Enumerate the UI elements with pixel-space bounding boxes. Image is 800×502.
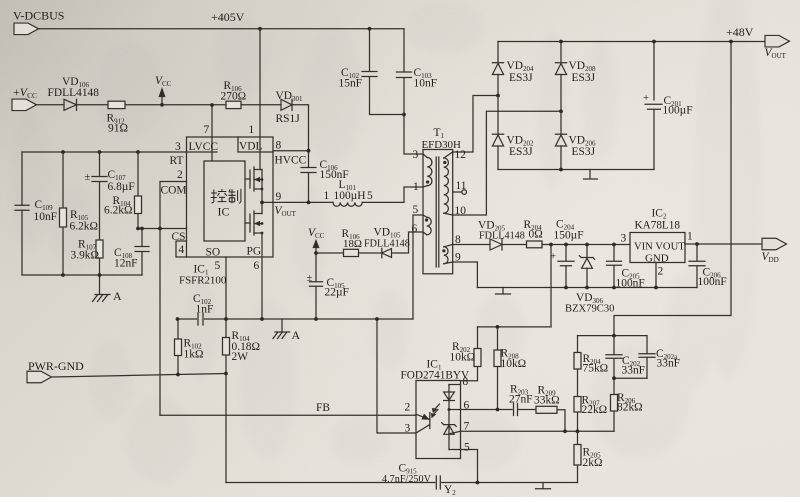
svg-text:6: 6 <box>464 400 470 412</box>
svg-text:VIN VOUT: VIN VOUT <box>634 242 685 253</box>
svg-text:10nF: 10nF <box>34 211 58 223</box>
svg-text:10nF: 10nF <box>414 78 438 90</box>
svg-text:15nF: 15nF <box>339 78 363 90</box>
svg-text:FDLL4148: FDLL4148 <box>48 87 100 99</box>
svg-text:2: 2 <box>405 402 411 414</box>
svg-text:6.2kΩ: 6.2kΩ <box>104 205 133 217</box>
svg-text:LVCC: LVCC <box>189 141 218 153</box>
svg-text:ES3J: ES3J <box>509 72 533 84</box>
svg-text:10kΩ: 10kΩ <box>501 358 527 370</box>
svg-text:ES3J: ES3J <box>509 146 533 158</box>
svg-text:82kΩ: 82kΩ <box>617 402 643 414</box>
svg-text:3: 3 <box>413 149 419 161</box>
svg-text:6: 6 <box>412 223 418 235</box>
svg-text:FOD2741BYV: FOD2741BYV <box>401 370 470 382</box>
svg-text:33nF: 33nF <box>657 358 681 370</box>
svg-text:10kΩ: 10kΩ <box>450 352 476 364</box>
svg-text:91Ω: 91Ω <box>108 123 128 135</box>
svg-text:100nF: 100nF <box>616 278 645 290</box>
svg-text:+405V: +405V <box>211 10 245 24</box>
svg-text:75kΩ: 75kΩ <box>583 363 609 375</box>
svg-text:1: 1 <box>687 231 693 243</box>
svg-text:0Ω: 0Ω <box>529 229 543 241</box>
svg-text:IC: IC <box>218 205 230 219</box>
svg-text:27nF: 27nF <box>509 394 533 406</box>
svg-text:22kΩ: 22kΩ <box>582 404 608 416</box>
svg-text:5: 5 <box>413 204 419 216</box>
svg-text:33nF: 33nF <box>622 365 646 377</box>
svg-text:±: ± <box>307 273 313 284</box>
svg-text:100µH: 100µH <box>334 190 366 202</box>
svg-text:3: 3 <box>621 233 627 245</box>
svg-text:ES3J: ES3J <box>572 146 596 158</box>
svg-text:KA78L18: KA78L18 <box>635 220 681 232</box>
svg-text:FDLL4148: FDLL4148 <box>364 239 410 250</box>
svg-text:SO: SO <box>206 247 221 259</box>
svg-text:100µF: 100µF <box>663 105 693 117</box>
svg-text:7: 7 <box>204 124 210 136</box>
svg-text:V-DCBUS: V-DCBUS <box>13 9 64 23</box>
svg-text:11: 11 <box>456 180 467 192</box>
svg-text:5: 5 <box>215 260 221 272</box>
svg-text:5: 5 <box>464 442 470 454</box>
svg-text:PG: PG <box>247 246 262 258</box>
svg-text:18Ω: 18Ω <box>343 238 362 250</box>
svg-text:12nF: 12nF <box>114 258 138 270</box>
svg-text:4: 4 <box>179 244 185 256</box>
svg-text:2: 2 <box>658 266 664 278</box>
svg-text:270Ω: 270Ω <box>221 91 247 103</box>
svg-text:8: 8 <box>455 234 461 246</box>
svg-text:+48V: +48V <box>726 25 754 39</box>
svg-text:BZX79C30: BZX79C30 <box>565 304 614 315</box>
svg-text:150µF: 150µF <box>554 230 584 242</box>
svg-text:+: + <box>643 93 649 104</box>
svg-text:100nF: 100nF <box>698 276 727 288</box>
svg-text:6.8µF: 6.8µF <box>108 181 135 193</box>
svg-text:12: 12 <box>455 149 467 161</box>
svg-text:FDLL4148: FDLL4148 <box>479 231 525 242</box>
svg-text:5: 5 <box>367 190 373 202</box>
svg-text:1: 1 <box>324 190 330 202</box>
svg-text:VDL: VDL <box>239 141 263 153</box>
svg-text:9: 9 <box>455 252 461 264</box>
svg-text:3: 3 <box>175 141 181 153</box>
svg-text:FB: FB <box>316 402 330 414</box>
svg-text:3.9kΩ: 3.9kΩ <box>71 250 100 262</box>
svg-text:1kΩ: 1kΩ <box>184 349 204 361</box>
svg-text:±: ± <box>85 172 91 183</box>
svg-text:4.7nF/250V: 4.7nF/250V <box>382 474 432 485</box>
svg-text:2: 2 <box>177 169 183 181</box>
svg-text:8: 8 <box>276 140 282 152</box>
svg-text:6.2kΩ: 6.2kΩ <box>70 221 99 233</box>
svg-text:RS1J: RS1J <box>276 113 301 125</box>
svg-text:COM: COM <box>161 185 187 197</box>
svg-text:8: 8 <box>463 376 469 388</box>
svg-text:2kΩ: 2kΩ <box>583 457 603 469</box>
svg-text:10: 10 <box>455 205 467 217</box>
svg-text:HVCC: HVCC <box>275 155 307 167</box>
svg-text:22µF: 22µF <box>325 287 349 299</box>
svg-text:9: 9 <box>276 191 282 203</box>
svg-text:PWR-GND: PWR-GND <box>28 359 84 373</box>
svg-text:A: A <box>113 289 122 303</box>
svg-text:ES3J: ES3J <box>572 72 596 84</box>
svg-text:1nF: 1nF <box>196 304 214 316</box>
svg-text:A: A <box>292 328 301 342</box>
svg-text:CS: CS <box>172 231 186 243</box>
svg-text:+: + <box>550 252 556 263</box>
svg-text:GND: GND <box>645 253 669 265</box>
svg-text:RT: RT <box>170 155 184 167</box>
svg-text:1: 1 <box>413 181 419 193</box>
svg-text:3: 3 <box>405 423 411 435</box>
svg-text:7: 7 <box>464 421 470 433</box>
svg-text:2W: 2W <box>232 351 249 363</box>
svg-text:FSFR2100: FSFR2100 <box>179 275 227 287</box>
svg-text:33kΩ: 33kΩ <box>534 395 560 407</box>
svg-text:1: 1 <box>249 124 255 136</box>
svg-text:6: 6 <box>254 260 260 272</box>
